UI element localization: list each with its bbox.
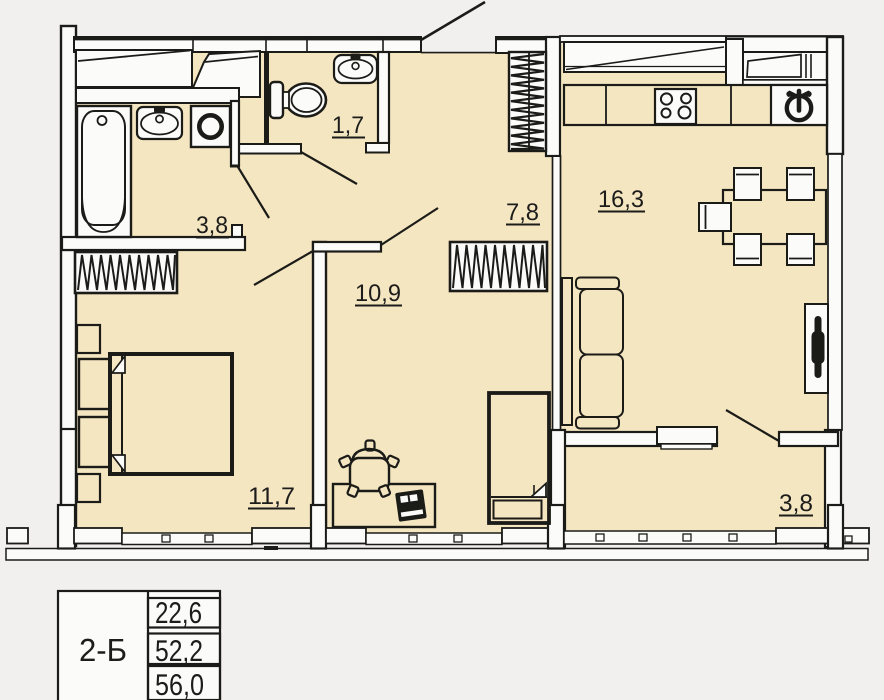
svg-text:52,2: 52,2 <box>155 635 203 668</box>
svg-text:1,7: 1,7 <box>332 112 364 139</box>
svg-text:3,8: 3,8 <box>779 490 813 517</box>
svg-text:11,7: 11,7 <box>248 483 295 510</box>
svg-text:3,8: 3,8 <box>196 212 228 239</box>
svg-text:22,6: 22,6 <box>155 597 202 630</box>
svg-text:2-Б: 2-Б <box>79 632 127 668</box>
svg-text:56,0: 56,0 <box>155 669 204 700</box>
svg-text:10,9: 10,9 <box>355 280 401 307</box>
svg-text:7,8: 7,8 <box>506 199 539 226</box>
svg-text:16,3: 16,3 <box>598 186 644 213</box>
